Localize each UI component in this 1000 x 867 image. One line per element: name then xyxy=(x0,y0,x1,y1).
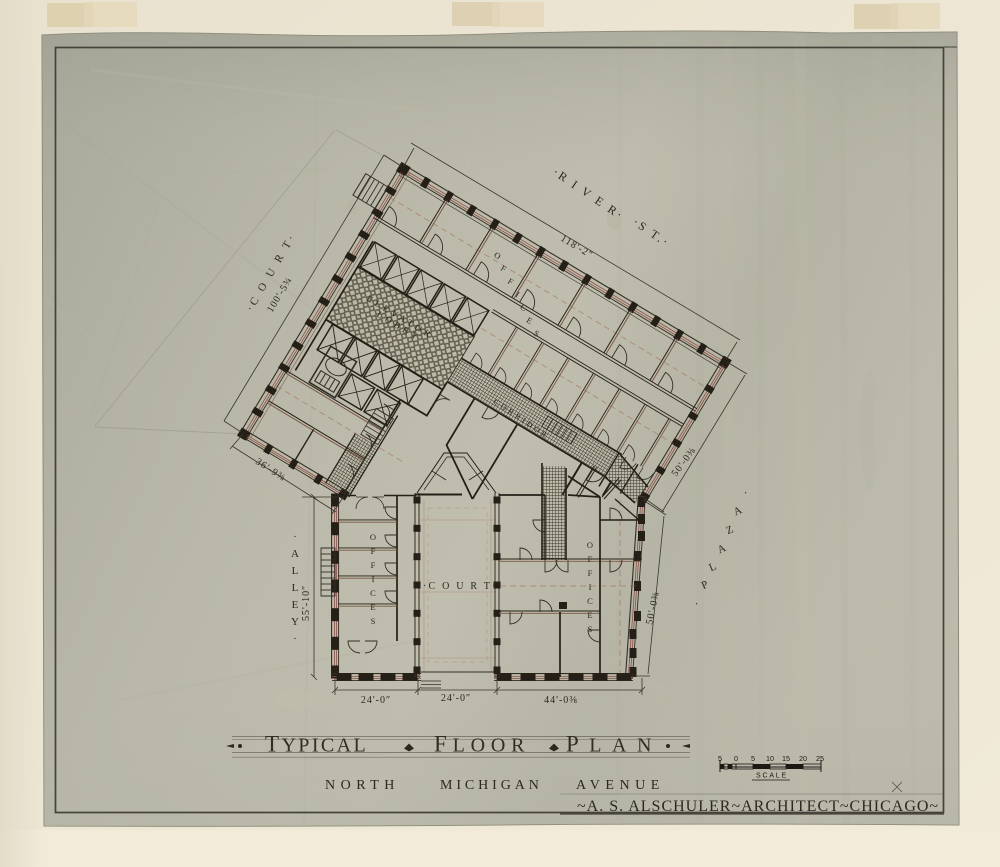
svg-text:TYPICAL: TYPICAL xyxy=(265,732,368,757)
svg-text:25: 25 xyxy=(816,754,824,763)
svg-text:44'-0⅜: 44'-0⅜ xyxy=(544,695,578,706)
svg-text:24'-0″: 24'-0″ xyxy=(441,693,471,704)
svg-text:S: S xyxy=(588,624,593,634)
svg-text:F: F xyxy=(588,554,593,564)
svg-text:E: E xyxy=(292,599,299,611)
svg-text:F: F xyxy=(588,568,593,578)
svg-text:Y: Y xyxy=(291,616,299,628)
svg-text:5: 5 xyxy=(718,754,722,763)
svg-text:AVENUE: AVENUE xyxy=(576,778,665,793)
svg-text:·: · xyxy=(293,633,297,645)
svg-text:5: 5 xyxy=(751,754,755,763)
svg-text:NORTH: NORTH xyxy=(325,778,400,793)
svg-text:·: · xyxy=(293,531,297,543)
svg-text:A: A xyxy=(291,548,299,560)
svg-text:FLOOR: FLOOR xyxy=(434,732,530,757)
svg-text:20: 20 xyxy=(799,754,807,763)
svg-text:10: 10 xyxy=(766,754,774,763)
svg-text:E: E xyxy=(370,602,375,612)
svg-text:55'-10″: 55'-10″ xyxy=(301,585,312,621)
svg-text:C: C xyxy=(370,588,376,598)
svg-text:0: 0 xyxy=(734,754,738,763)
svg-text:S: S xyxy=(371,616,376,626)
svg-text:C: C xyxy=(587,596,593,606)
svg-text:L: L xyxy=(292,565,299,577)
svg-text:24'-0″: 24'-0″ xyxy=(361,695,391,706)
svg-text:F: F xyxy=(371,546,376,556)
svg-text:O: O xyxy=(587,540,593,550)
svg-text:PLAN: PLAN xyxy=(566,732,662,757)
svg-text:MICHIGAN: MICHIGAN xyxy=(440,778,543,793)
svg-text:~A. S. ALSCHULER~ARCHITECT~CHI: ~A. S. ALSCHULER~ARCHITECT~CHICAGO~ xyxy=(577,798,939,815)
svg-text:I: I xyxy=(589,582,592,592)
svg-text:L: L xyxy=(292,582,299,594)
svg-text:O: O xyxy=(370,532,376,542)
svg-text:·C O U R T·: ·C O U R T· xyxy=(423,581,498,592)
svg-text:I: I xyxy=(372,574,375,584)
svg-text:E: E xyxy=(587,610,592,620)
svg-text:F: F xyxy=(371,560,376,570)
svg-text:15: 15 xyxy=(782,754,790,763)
svg-text:SCALE: SCALE xyxy=(756,773,788,780)
